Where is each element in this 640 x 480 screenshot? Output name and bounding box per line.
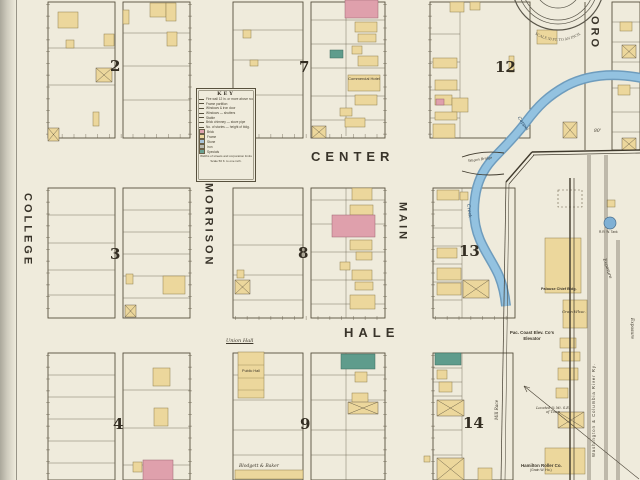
block-number-13: 13	[459, 242, 480, 260]
block-number-9: 9	[300, 415, 310, 433]
label-pac-coast-elevator-line1: Pac. Coast Elev. Co's	[506, 330, 558, 335]
block-number-2: 2	[110, 57, 120, 75]
label-located-note: Located ¼ Mi. S.E. of Town	[536, 406, 570, 414]
block-number-8: 8	[298, 244, 308, 262]
block-number-12: 12	[495, 58, 516, 76]
block-number-3: 3	[110, 245, 120, 263]
label-palouse-chief-bldg: Palouse Chief Bldg.	[541, 287, 577, 291]
street-label-center: CENTER	[311, 150, 394, 165]
label-blodgett-baker: Blodgett & Baker	[239, 464, 279, 469]
key-footer: Scale 50 ft. to one inch.	[199, 159, 253, 163]
label-union-hall: Union Hall	[226, 339, 253, 345]
block-number-7: 7	[299, 58, 309, 76]
label-exposure-right: Exposure	[629, 318, 634, 339]
street-label-oro: ORO	[588, 16, 601, 50]
rr-water-tank-icon	[604, 217, 616, 229]
sanborn-map-sheet: SCALE 50 FT. TO AN INCH. COLLEGE MORRISO…	[0, 0, 640, 480]
block-number-14: 14	[463, 414, 484, 432]
page-scan-edge	[0, 0, 17, 480]
label-public-hall: Public Hall	[240, 369, 262, 373]
street-label-morrison: MORRISON	[202, 183, 215, 268]
label-mill-race: Mill Race	[495, 350, 500, 420]
street-label-main: MAIN	[396, 202, 409, 242]
street-label-college: COLLEGE	[21, 193, 34, 267]
label-railroad: Washington & Columbia River Ry.	[592, 297, 597, 457]
label-pac-coast-elevator-line2: Elevator	[506, 336, 558, 341]
label-hamilton-grain-whse: (Grain W. Ho.)	[530, 469, 552, 473]
street-label-hale: HALE	[344, 326, 399, 341]
block-number-4: 4	[113, 415, 123, 433]
key-row: Fire wall 12 in. or more above roof	[199, 97, 253, 102]
label-rr-water-tank: R.R. W. Tank	[599, 231, 618, 235]
label-commercial-hotel: Commercial Hotel	[346, 77, 382, 82]
label-grain-warehouse: Grain Whse.	[562, 310, 586, 314]
label-oro-street-width: 80'	[594, 129, 601, 134]
map-key-legend: KEY Fire wall 12 in. or more above roof …	[196, 88, 256, 182]
